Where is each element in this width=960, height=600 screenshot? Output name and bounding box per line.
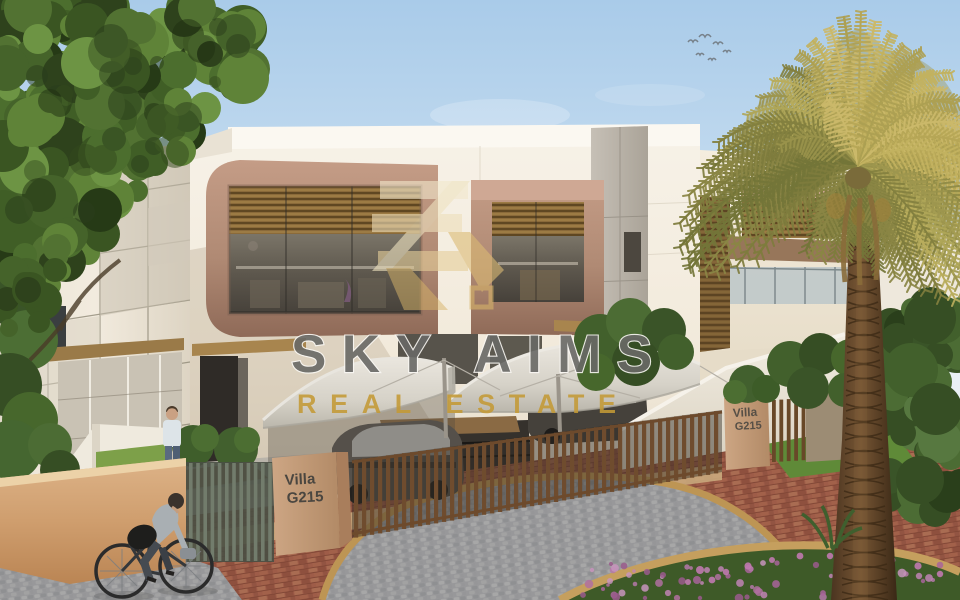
svg-text:G215: G215 <box>286 488 324 507</box>
svg-text:REAL ESTATE: REAL ESTATE <box>297 389 630 419</box>
svg-text:SKY AIMS: SKY AIMS <box>291 325 667 384</box>
svg-text:Villa: Villa <box>732 405 757 420</box>
svg-text:G215: G215 <box>735 420 763 433</box>
svg-text:Villa: Villa <box>284 470 316 489</box>
